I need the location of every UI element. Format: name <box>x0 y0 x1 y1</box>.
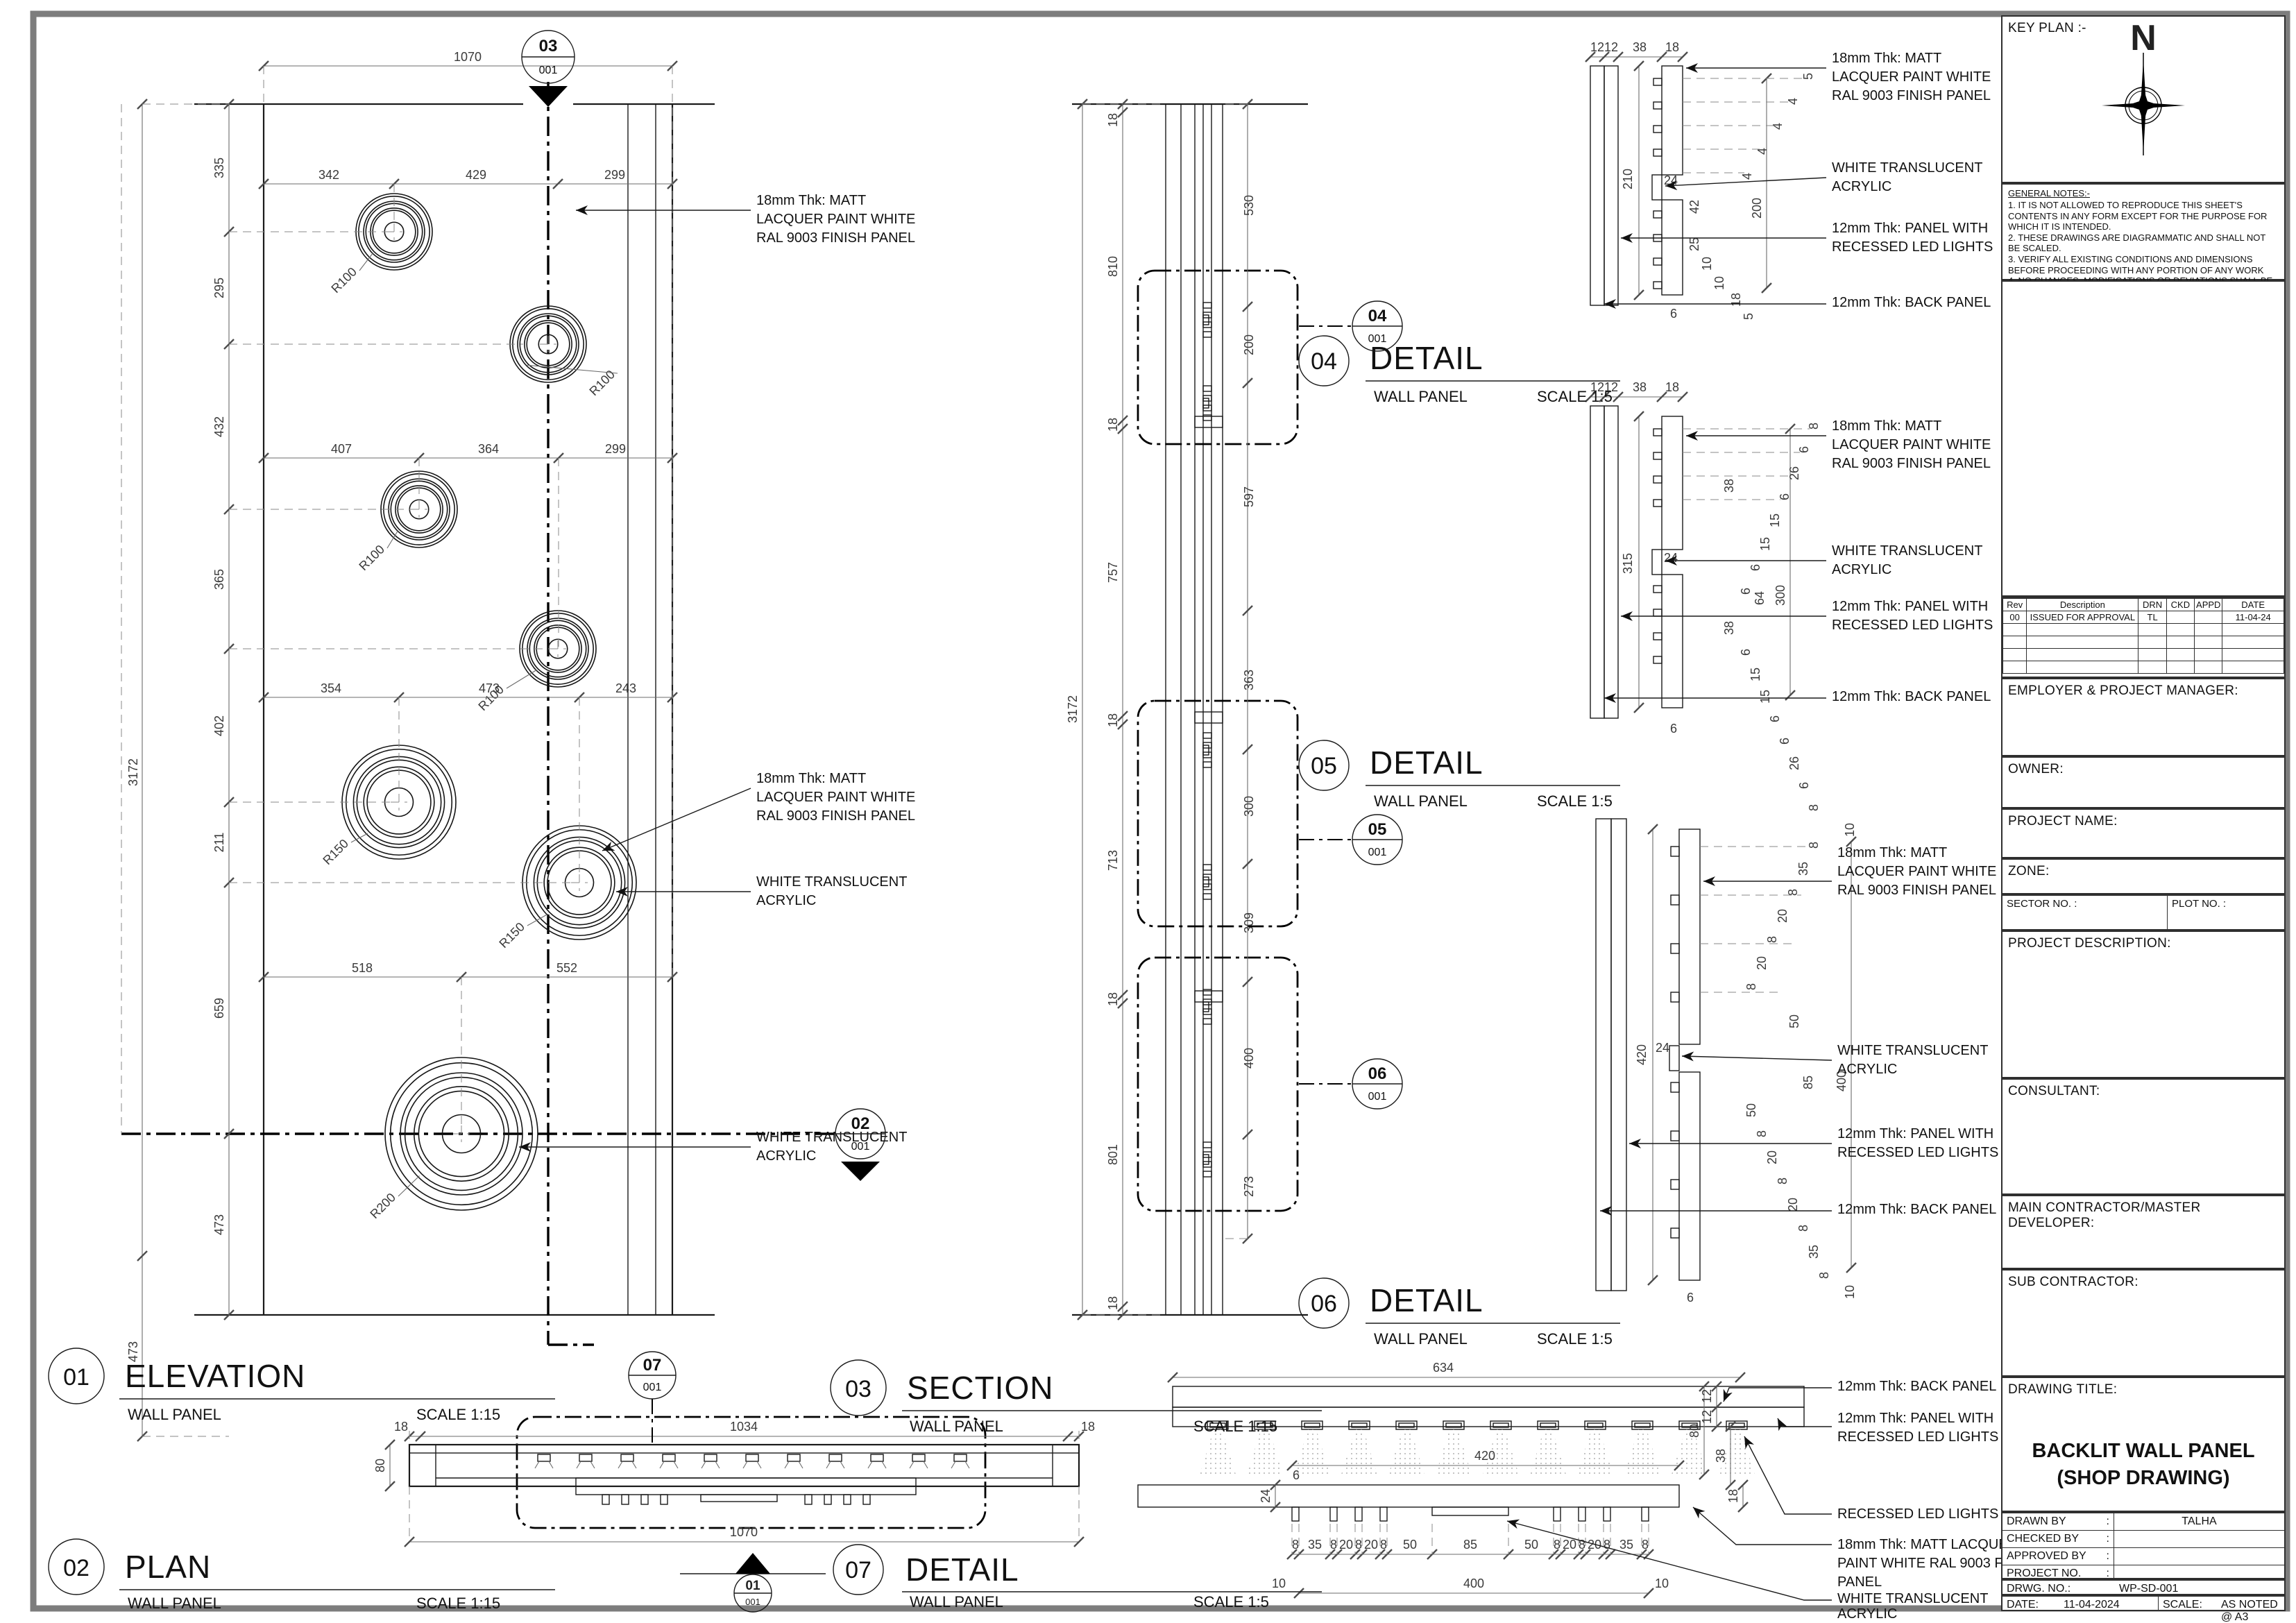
checked-by-row: CHECKED BY: <box>2002 1530 2284 1547</box>
section-detail-boundary <box>1138 958 1298 1211</box>
led-ray <box>826 1461 831 1468</box>
revision-row-empty <box>2003 661 2284 674</box>
dim-text: 8 <box>1642 1538 1649 1552</box>
dim-text: 42 <box>1687 200 1701 214</box>
dim-text: 85 <box>1801 1076 1815 1089</box>
view-name: DETAIL <box>905 1552 1019 1588</box>
dim-text: 342 <box>318 168 339 182</box>
joint-block <box>1195 712 1223 723</box>
leader-line <box>1682 1056 1832 1060</box>
face-panel-lower <box>1662 200 1683 295</box>
dim-text: 10 <box>1700 257 1714 271</box>
consultant-box: CONSULTANT: <box>2001 1078 2286 1195</box>
rev-cell <box>2166 611 2194 624</box>
plan-panel-outline <box>409 1445 1079 1486</box>
employer-label: EMPLOYER & PROJECT MANAGER: <box>2002 679 2284 703</box>
view-subtitle: WALL PANEL <box>1374 1330 1468 1348</box>
profile-tooth <box>1554 1507 1561 1521</box>
material-label: ACRYLIC <box>1832 179 1891 194</box>
cad-canvas: R100R100R100R100R150R150R200317247333529… <box>0 0 2296 1623</box>
revision-row: 00 ISSUED FOR APPROVAL TL 11-04-24 <box>2003 611 2284 624</box>
view-subtitle: WALL PANEL <box>1374 792 1468 810</box>
profile-tooth <box>1330 1507 1337 1521</box>
plan-view: 18103418801070 <box>373 1417 1095 1547</box>
led-groove-tooth <box>1203 865 1211 870</box>
marker-sheet: 001 <box>643 1382 662 1393</box>
view-scale: SCALE 1:5 <box>1537 1330 1613 1348</box>
dim-text: 4 <box>1771 123 1785 130</box>
material-label: RAL 9003 FINISH PANEL <box>1832 456 1991 471</box>
checked-by-label: CHECKED BY <box>2007 1533 2079 1545</box>
drawing-title-box: DRAWING TITLE: BACKLIT WALL PANEL (SHOP … <box>2001 1377 2286 1512</box>
back-panel-strip <box>1590 66 1604 305</box>
date-value: 11-04-2024 <box>2059 1597 2159 1610</box>
dim-text: 810 <box>1106 256 1120 277</box>
detail-callout-07: 07 001 <box>629 1352 676 1443</box>
profile-tooth <box>1292 1507 1299 1521</box>
dim-text: 429 <box>466 168 486 182</box>
led-groove-tooth <box>1203 894 1211 899</box>
material-label: RAL 9003 FINISH PANEL <box>1832 88 1991 103</box>
material-label: LACQUER PAINT WHITE <box>756 790 915 805</box>
revision-table-box: Rev Description DRN CKD APPD DATE 00 ISS… <box>2001 597 2286 678</box>
profile-tooth <box>824 1495 831 1504</box>
dim-text: 200 <box>1242 334 1256 355</box>
dim-text: 8 <box>1796 1225 1810 1232</box>
view-title-detail06: 06 DETAIL WALL PANEL SCALE 1:5 <box>1299 1278 1620 1348</box>
led-groove-tooth <box>1203 762 1211 767</box>
led-groove-tooth <box>1671 944 1679 953</box>
dim-text: 364 <box>478 442 499 456</box>
dim-text: 15 <box>1749 668 1762 681</box>
section-marker-03: 03 001 <box>522 31 575 107</box>
dim-text: 200 <box>1750 198 1764 219</box>
dim-text: 8 <box>1292 1538 1299 1552</box>
north-letter: N <box>2130 18 2157 58</box>
dim-text: 8 <box>1330 1538 1337 1552</box>
detail-callout-05: 05 001 <box>1299 815 1402 865</box>
drawing-title-line2: (SHOP DRAWING) <box>2002 1465 2284 1492</box>
dim-text: 38 <box>1714 1449 1728 1463</box>
dim-text: 12 <box>1604 40 1618 54</box>
radius-label: R100 <box>356 542 387 573</box>
material-label: RECESSED LED LIGHTS <box>1832 239 1993 255</box>
led-groove-tooth <box>1203 332 1211 337</box>
employer-box: EMPLOYER & PROJECT MANAGER: <box>2001 678 2286 756</box>
drawn-by-label: DRAWN BY <box>2007 1515 2066 1528</box>
dim-text: 407 <box>331 442 352 456</box>
led-module <box>579 1454 592 1461</box>
rev-cell: ISSUED FOR APPROVAL <box>2027 611 2138 624</box>
material-label: 18mm Thk: MATT <box>756 771 866 786</box>
material-label: ACRYLIC <box>1837 1062 1897 1077</box>
rev-header: Rev <box>2003 599 2027 611</box>
led-ray <box>535 1461 539 1468</box>
dim-text: 3172 <box>1066 695 1080 723</box>
dim-text: 8 <box>1579 1538 1585 1552</box>
led-groove-tooth <box>1653 656 1662 663</box>
dim-text: 6 <box>1768 715 1782 722</box>
dim-text: 18 <box>1665 380 1679 394</box>
dim-text: 8 <box>1554 1538 1561 1552</box>
dim-text: 6 <box>1778 738 1792 745</box>
approved-by-label: APPROVED BY <box>2007 1550 2086 1563</box>
radius-label: R200 <box>367 1190 398 1221</box>
dim-text: 8 <box>1755 1130 1769 1137</box>
dim-text: 18 <box>1726 1489 1740 1503</box>
dim-text: 552 <box>556 961 577 975</box>
consultant-label: CONSULTANT: <box>2002 1080 2284 1103</box>
dim-text: 801 <box>1106 1144 1120 1165</box>
light-cone <box>1388 1429 1425 1475</box>
dim-text: 6 <box>1797 782 1811 789</box>
led-groove-tooth <box>1203 303 1211 308</box>
revision-row-empty <box>2003 649 2284 661</box>
dim-text: 6 <box>1293 1468 1300 1482</box>
checked-by-value <box>2114 1531 2284 1547</box>
face-panel-upper <box>1662 66 1683 175</box>
radius-leader <box>527 365 618 373</box>
view-name: SECTION <box>907 1370 1053 1406</box>
led-ray <box>590 1461 595 1468</box>
profile-tooth <box>1642 1507 1649 1521</box>
acrylic-tab <box>1203 315 1209 325</box>
view-number: 01 <box>63 1364 90 1391</box>
dim-text: 518 <box>352 961 373 975</box>
acrylic-tab <box>1652 550 1662 575</box>
led-groove-tooth <box>1671 992 1679 1002</box>
face-panel-strip <box>1211 104 1223 1315</box>
led-groove-tooth <box>1653 211 1662 218</box>
led-ray <box>715 1461 720 1468</box>
view-title-detail07: 07 DETAIL WALL PANEL SCALE 1:5 <box>833 1545 1322 1611</box>
led-module <box>621 1454 633 1461</box>
dim-text: 80 <box>373 1459 387 1472</box>
material-label: PANEL <box>1837 1574 1882 1590</box>
section-cut-arrow <box>841 1162 880 1181</box>
dim-text: 24 <box>1259 1489 1273 1503</box>
section-marker-02: 02 001 <box>835 1109 885 1181</box>
radius-label: R150 <box>320 836 351 867</box>
project-name-label: PROJECT NAME: <box>2002 810 2284 833</box>
plan-end-cap <box>1053 1445 1079 1486</box>
dim-text: 12 <box>1700 1389 1714 1403</box>
dim-text: 26 <box>1787 466 1801 480</box>
dim-text: 8 <box>1817 1272 1831 1279</box>
dim-text: 8 <box>1380 1538 1387 1552</box>
led-groove-tooth <box>1653 476 1662 483</box>
leader-line <box>602 788 751 851</box>
material-label: WHITE TRANSLUCENT <box>1837 1043 1988 1058</box>
dim-text: 18 <box>1081 1420 1095 1434</box>
material-label: 12mm Thk: PANEL WITH <box>1837 1126 1993 1141</box>
dim-text: 8 <box>1765 936 1779 943</box>
general-note: 3. VERIFY ALL EXISTING CONDITIONS AND DI… <box>2008 254 2279 275</box>
material-label: LACQUER PAINT WHITE <box>1832 437 1991 452</box>
material-label: 12mm Thk: PANEL WITH <box>1832 599 1988 614</box>
drawing-title-line1: BACKLIT WALL PANEL <box>2002 1438 2284 1465</box>
marker-number: 02 <box>851 1114 870 1133</box>
dim-text: 18 <box>1106 418 1120 432</box>
led-groove-tooth <box>1671 895 1679 905</box>
dim-text: 18 <box>1106 113 1120 127</box>
matt-face-slab <box>1138 1485 1679 1507</box>
acrylic-tab <box>1203 398 1209 408</box>
rev-header: APPD <box>2195 599 2222 611</box>
material-label: 12mm Thk: BACK PANEL <box>1837 1202 1996 1217</box>
material-label: RAL 9003 FINISH PANEL <box>756 808 915 824</box>
view-number: 05 <box>1311 753 1337 779</box>
dim-text: 400 <box>1242 1048 1256 1069</box>
profile-mid-block <box>1432 1507 1508 1515</box>
project-name-box: PROJECT NAME: <box>2001 808 2286 858</box>
view-title-plan: 02 PLAN WALL PANEL SCALE 1:15 <box>49 1539 555 1612</box>
led-groove-tooth <box>1653 282 1662 289</box>
section-cut-arrow <box>735 1553 770 1574</box>
acrylic-tab <box>1203 1002 1209 1012</box>
profile-tooth <box>863 1495 870 1504</box>
sub-contractor-label: SUB CONTRACTOR: <box>2002 1271 2284 1294</box>
dim-text: 24 <box>1664 551 1678 565</box>
radius-leader <box>398 1176 420 1197</box>
material-label: WHITE TRANSLUCENT <box>756 874 907 890</box>
dim-text: 20 <box>1776 909 1789 923</box>
view-title-detail05: 05 DETAIL WALL PANEL SCALE 1:5 <box>1299 740 1620 810</box>
drawing-sheet: R100R100R100R100R150R150R200317247333529… <box>0 0 2296 1623</box>
led-groove-tooth <box>1203 1142 1211 1148</box>
view-scale: SCALE 1:15 <box>416 1406 500 1423</box>
date-scale-box: DATE: 11-04-2024 SCALE: AS NOTED @ A3 <box>2001 1595 2286 1611</box>
dim-text: 432 <box>212 416 226 437</box>
dim-text: 473 <box>212 1214 226 1235</box>
view-subtitle: WALL PANEL <box>128 1595 221 1612</box>
face-panel-upper <box>1679 829 1700 1044</box>
material-label: 18mm Thk: MATT <box>756 193 866 208</box>
scale-value: AS NOTED @ A3 <box>2217 1597 2284 1610</box>
dim-text: 10 <box>1712 276 1726 290</box>
profile-tooth <box>602 1495 609 1504</box>
back-panel-strip <box>1195 104 1203 1315</box>
approved-by-value <box>2114 1548 2284 1565</box>
view-title-detail04: 04 DETAIL WALL PANEL SCALE 1:5 <box>1299 336 1620 405</box>
led-groove-tooth <box>1671 1131 1679 1141</box>
dim-text: 20 <box>1339 1538 1353 1552</box>
dim-text: 20 <box>1755 956 1769 970</box>
dim-text: 24 <box>1656 1041 1669 1055</box>
profile-tooth <box>1380 1507 1387 1521</box>
radius-label: R100 <box>328 264 359 296</box>
rev-header: CKD <box>2166 599 2194 611</box>
acrylic-tab <box>1652 175 1662 200</box>
led-groove-tooth <box>1203 989 1211 995</box>
led-panel-strip <box>1604 406 1618 718</box>
material-label: RECESSED LED LIGHTS <box>1832 618 1993 633</box>
drawn-by-row: DRAWN BY: TALHA <box>2002 1513 2284 1530</box>
elevation-view: R100R100R100R100R150R150R200317247333529… <box>121 50 915 1441</box>
material-label: WHITE TRANSLUCENT <box>1832 160 1982 176</box>
led-groove-tooth <box>1653 586 1662 593</box>
approved-by-row: APPROVED BY: <box>2002 1547 2284 1565</box>
leader-line <box>1693 1507 1832 1545</box>
led-groove-tooth <box>1203 415 1211 420</box>
main-contractor-label: MAIN CONTRACTOR/MASTER DEVELOPER: <box>2002 1196 2284 1235</box>
profile-tooth <box>805 1495 812 1504</box>
dim-text: 10 <box>1655 1577 1669 1590</box>
led-ray <box>549 1461 553 1468</box>
marker-number: 06 <box>1368 1064 1387 1083</box>
radius-leader <box>507 670 537 688</box>
view-subtitle: WALL PANEL <box>910 1593 1003 1611</box>
dim-text: 6 <box>1739 588 1753 595</box>
view-scale: SCALE 1:5 <box>1537 388 1613 405</box>
dim-text: 210 <box>1621 169 1635 189</box>
material-label: LACQUER PAINT WHITE <box>756 212 915 227</box>
sector-label: SECTOR NO. : <box>2002 896 2168 929</box>
section-detail-boundary <box>1138 271 1298 444</box>
dim-text: 10 <box>1272 1577 1286 1590</box>
dim-text: 38 <box>1722 479 1736 493</box>
view-scale: SCALE 1:5 <box>1537 792 1613 810</box>
led-module <box>663 1454 675 1461</box>
light-cone <box>1436 1429 1472 1475</box>
credits-box: DRAWN BY: TALHA CHECKED BY: APPROVED BY:… <box>2001 1512 2286 1579</box>
section-marker-01: 01 001 <box>680 1553 826 1612</box>
dim-text: 8 <box>1776 1178 1789 1184</box>
dim-text: 354 <box>321 681 341 695</box>
material-label: ACRYLIC <box>1837 1606 1897 1622</box>
led-groove-tooth <box>1653 633 1662 640</box>
view-name: PLAN <box>125 1549 211 1585</box>
owner-label: OWNER: <box>2002 758 2284 781</box>
led-ray <box>757 1461 761 1468</box>
marker-sheet: 001 <box>1368 333 1387 345</box>
led-groove-tooth <box>1653 126 1662 133</box>
dim-text: 8 <box>1744 983 1758 990</box>
led-ray <box>785 1461 789 1468</box>
material-label: RAL 9003 FINISH PANEL <box>756 230 915 246</box>
rev-cell: 00 <box>2003 611 2027 624</box>
dim-text: 243 <box>615 681 636 695</box>
material-label: RECESSED LED LIGHTS <box>1837 1429 1998 1445</box>
dim-text: 757 <box>1106 562 1120 583</box>
dim-text: 4 <box>1740 173 1754 180</box>
material-label: 12mm Thk: PANEL WITH <box>1832 221 1988 236</box>
material-label: 12mm Thk: BACK PANEL <box>1832 689 1991 704</box>
detail-07-view: 6344208038121218246835820820850855082082… <box>1138 1361 2040 1622</box>
dim-text: 8 <box>1807 842 1821 849</box>
general-notes-box: GENERAL NOTES:- 1. IT IS NOT ALLOWED TO … <box>2001 183 2286 280</box>
dim-text: 4 <box>1755 148 1769 155</box>
dim-text: 335 <box>212 158 226 178</box>
blank-box <box>2001 280 2286 597</box>
material-label: 18mm Thk: MATT <box>1832 418 1941 434</box>
led-groove-tooth <box>1671 1180 1679 1189</box>
view-subtitle: WALL PANEL <box>128 1406 221 1423</box>
dim-text: 634 <box>1433 1361 1454 1375</box>
dim-text: 35 <box>1619 1538 1633 1552</box>
led-module <box>538 1454 550 1461</box>
material-label: RECESSED LED LIGHTS <box>1837 1145 1998 1160</box>
revision-table: Rev Description DRN CKD APPD DATE 00 ISS… <box>2002 598 2284 674</box>
dim-text: 8 <box>1604 1538 1610 1552</box>
scale-label: SCALE: <box>2159 1597 2217 1610</box>
acrylic-tab <box>1203 1155 1209 1164</box>
drawn-by-value: TALHA <box>2114 1513 2284 1530</box>
profile-tooth <box>622 1495 629 1504</box>
back-panel-strip <box>1596 819 1611 1291</box>
dim-text: 50 <box>1403 1538 1417 1552</box>
led-groove-tooth <box>1653 78 1662 85</box>
led-groove-tooth <box>1653 609 1662 616</box>
light-cone <box>1200 1429 1236 1475</box>
led-groove-tooth <box>1653 149 1662 156</box>
light-cone <box>1247 1429 1283 1475</box>
marker-sheet: 001 <box>851 1141 870 1153</box>
dim-text: 420 <box>1635 1044 1649 1065</box>
material-label: 18mm Thk: MATT <box>1832 51 1941 66</box>
led-module <box>788 1454 800 1461</box>
profile-tooth <box>1579 1507 1585 1521</box>
detail-05-view: 1212381831524383864300862661515666151566… <box>1585 380 1993 811</box>
dim-text: 4 <box>1786 98 1800 105</box>
led-groove-tooth <box>1671 847 1679 856</box>
led-module <box>704 1454 717 1461</box>
dim-text: 20 <box>1563 1538 1576 1552</box>
plot-label: PLOT NO. : <box>2168 896 2284 929</box>
dim-text: 420 <box>1474 1449 1495 1463</box>
profile-mid-block <box>701 1495 777 1502</box>
dim-text: 50 <box>1524 1538 1538 1552</box>
dim-text: 18 <box>1106 1296 1120 1310</box>
drwg-no-value: WP-SD-001 <box>2115 1581 2284 1594</box>
material-label: 12mm Thk: BACK PANEL <box>1837 1379 1996 1394</box>
dim-text: 402 <box>212 715 226 736</box>
dim-text: 15 <box>1758 690 1772 704</box>
led-ray <box>632 1461 636 1468</box>
dim-text: 50 <box>1787 1014 1801 1028</box>
section-cut-arrow <box>529 86 568 107</box>
acrylic-tab <box>1669 1046 1679 1071</box>
dim-text: 18 <box>1729 293 1743 307</box>
dim-text: 273 <box>1242 1176 1256 1197</box>
colon: : <box>2107 1550 2109 1563</box>
face-panel-lower <box>1662 575 1683 708</box>
led-ray <box>868 1461 872 1468</box>
marker-sheet: 001 <box>539 65 558 76</box>
material-label: ACRYLIC <box>1832 562 1891 577</box>
led-module <box>912 1454 925 1461</box>
dim-text: 38 <box>1722 621 1736 635</box>
led-module <box>829 1454 842 1461</box>
light-cone <box>1624 1429 1660 1475</box>
dim-text: 363 <box>1242 670 1256 690</box>
view-name: ELEVATION <box>125 1358 305 1394</box>
dim-text: 8 <box>1355 1538 1362 1552</box>
detail-callout-06: 06 001 <box>1299 1059 1402 1109</box>
led-module <box>871 1454 883 1461</box>
marker-number: 04 <box>1368 307 1387 325</box>
zone-box: ZONE: <box>2001 858 2286 894</box>
dim-text: 18 <box>394 1420 408 1434</box>
dim-text: 365 <box>212 569 226 590</box>
view-name: DETAIL <box>1370 340 1483 376</box>
joint-block <box>1195 416 1223 427</box>
marker-number: 03 <box>539 37 558 56</box>
dim-text: 473 <box>479 681 500 695</box>
view-title-section: 03 SECTION WALL PANEL SCALE 1:15 <box>831 1360 1322 1435</box>
detail-04-view: 12123818210244220054444251010185618mm Th… <box>1585 40 1993 321</box>
colon: : <box>2107 1533 2109 1545</box>
